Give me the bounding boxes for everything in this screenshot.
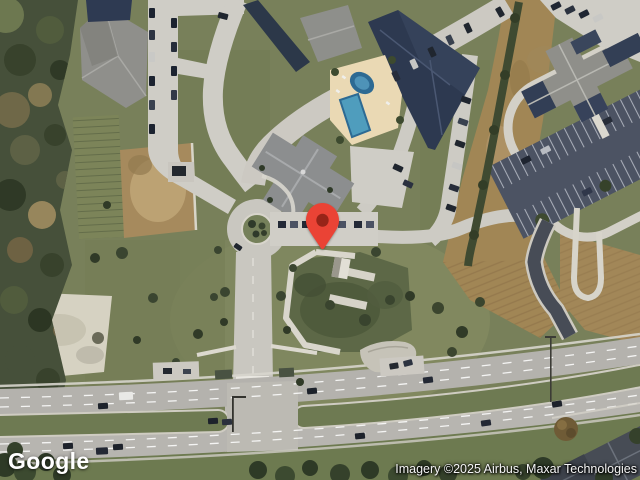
pin-glyph — [306, 203, 339, 249]
terraced-slope — [73, 115, 125, 239]
imagery-attribution: Imagery ©2025 Airbus, Maxar Technologies — [395, 462, 637, 476]
map-canvas[interactable]: Google Imagery ©2025 Airbus, Maxar Techn… — [0, 0, 640, 480]
location-pin-icon[interactable] — [306, 203, 339, 249]
google-logo[interactable]: Google — [8, 448, 90, 475]
